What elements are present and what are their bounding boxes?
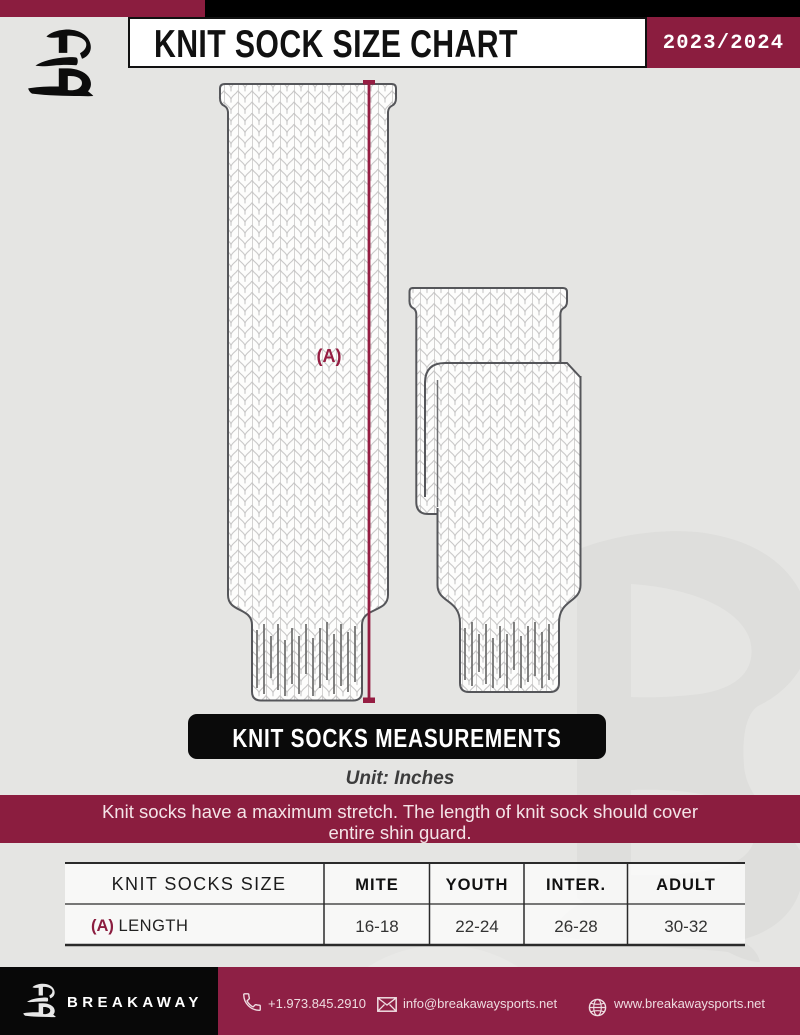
svg-text:26-28: 26-28 bbox=[554, 917, 597, 936]
svg-text:ADULT: ADULT bbox=[656, 876, 716, 894]
svg-text:INTER.: INTER. bbox=[546, 876, 606, 894]
svg-text:YOUTH: YOUTH bbox=[446, 876, 509, 894]
svg-text:16-18: 16-18 bbox=[355, 917, 398, 936]
svg-text:22-24: 22-24 bbox=[455, 917, 498, 936]
svg-text:MITE: MITE bbox=[355, 876, 398, 894]
svg-text:(A) LENGTH: (A) LENGTH bbox=[91, 917, 188, 935]
svg-text:30-32: 30-32 bbox=[664, 917, 707, 936]
svg-text:KNIT SOCKS SIZE: KNIT SOCKS SIZE bbox=[112, 874, 287, 894]
